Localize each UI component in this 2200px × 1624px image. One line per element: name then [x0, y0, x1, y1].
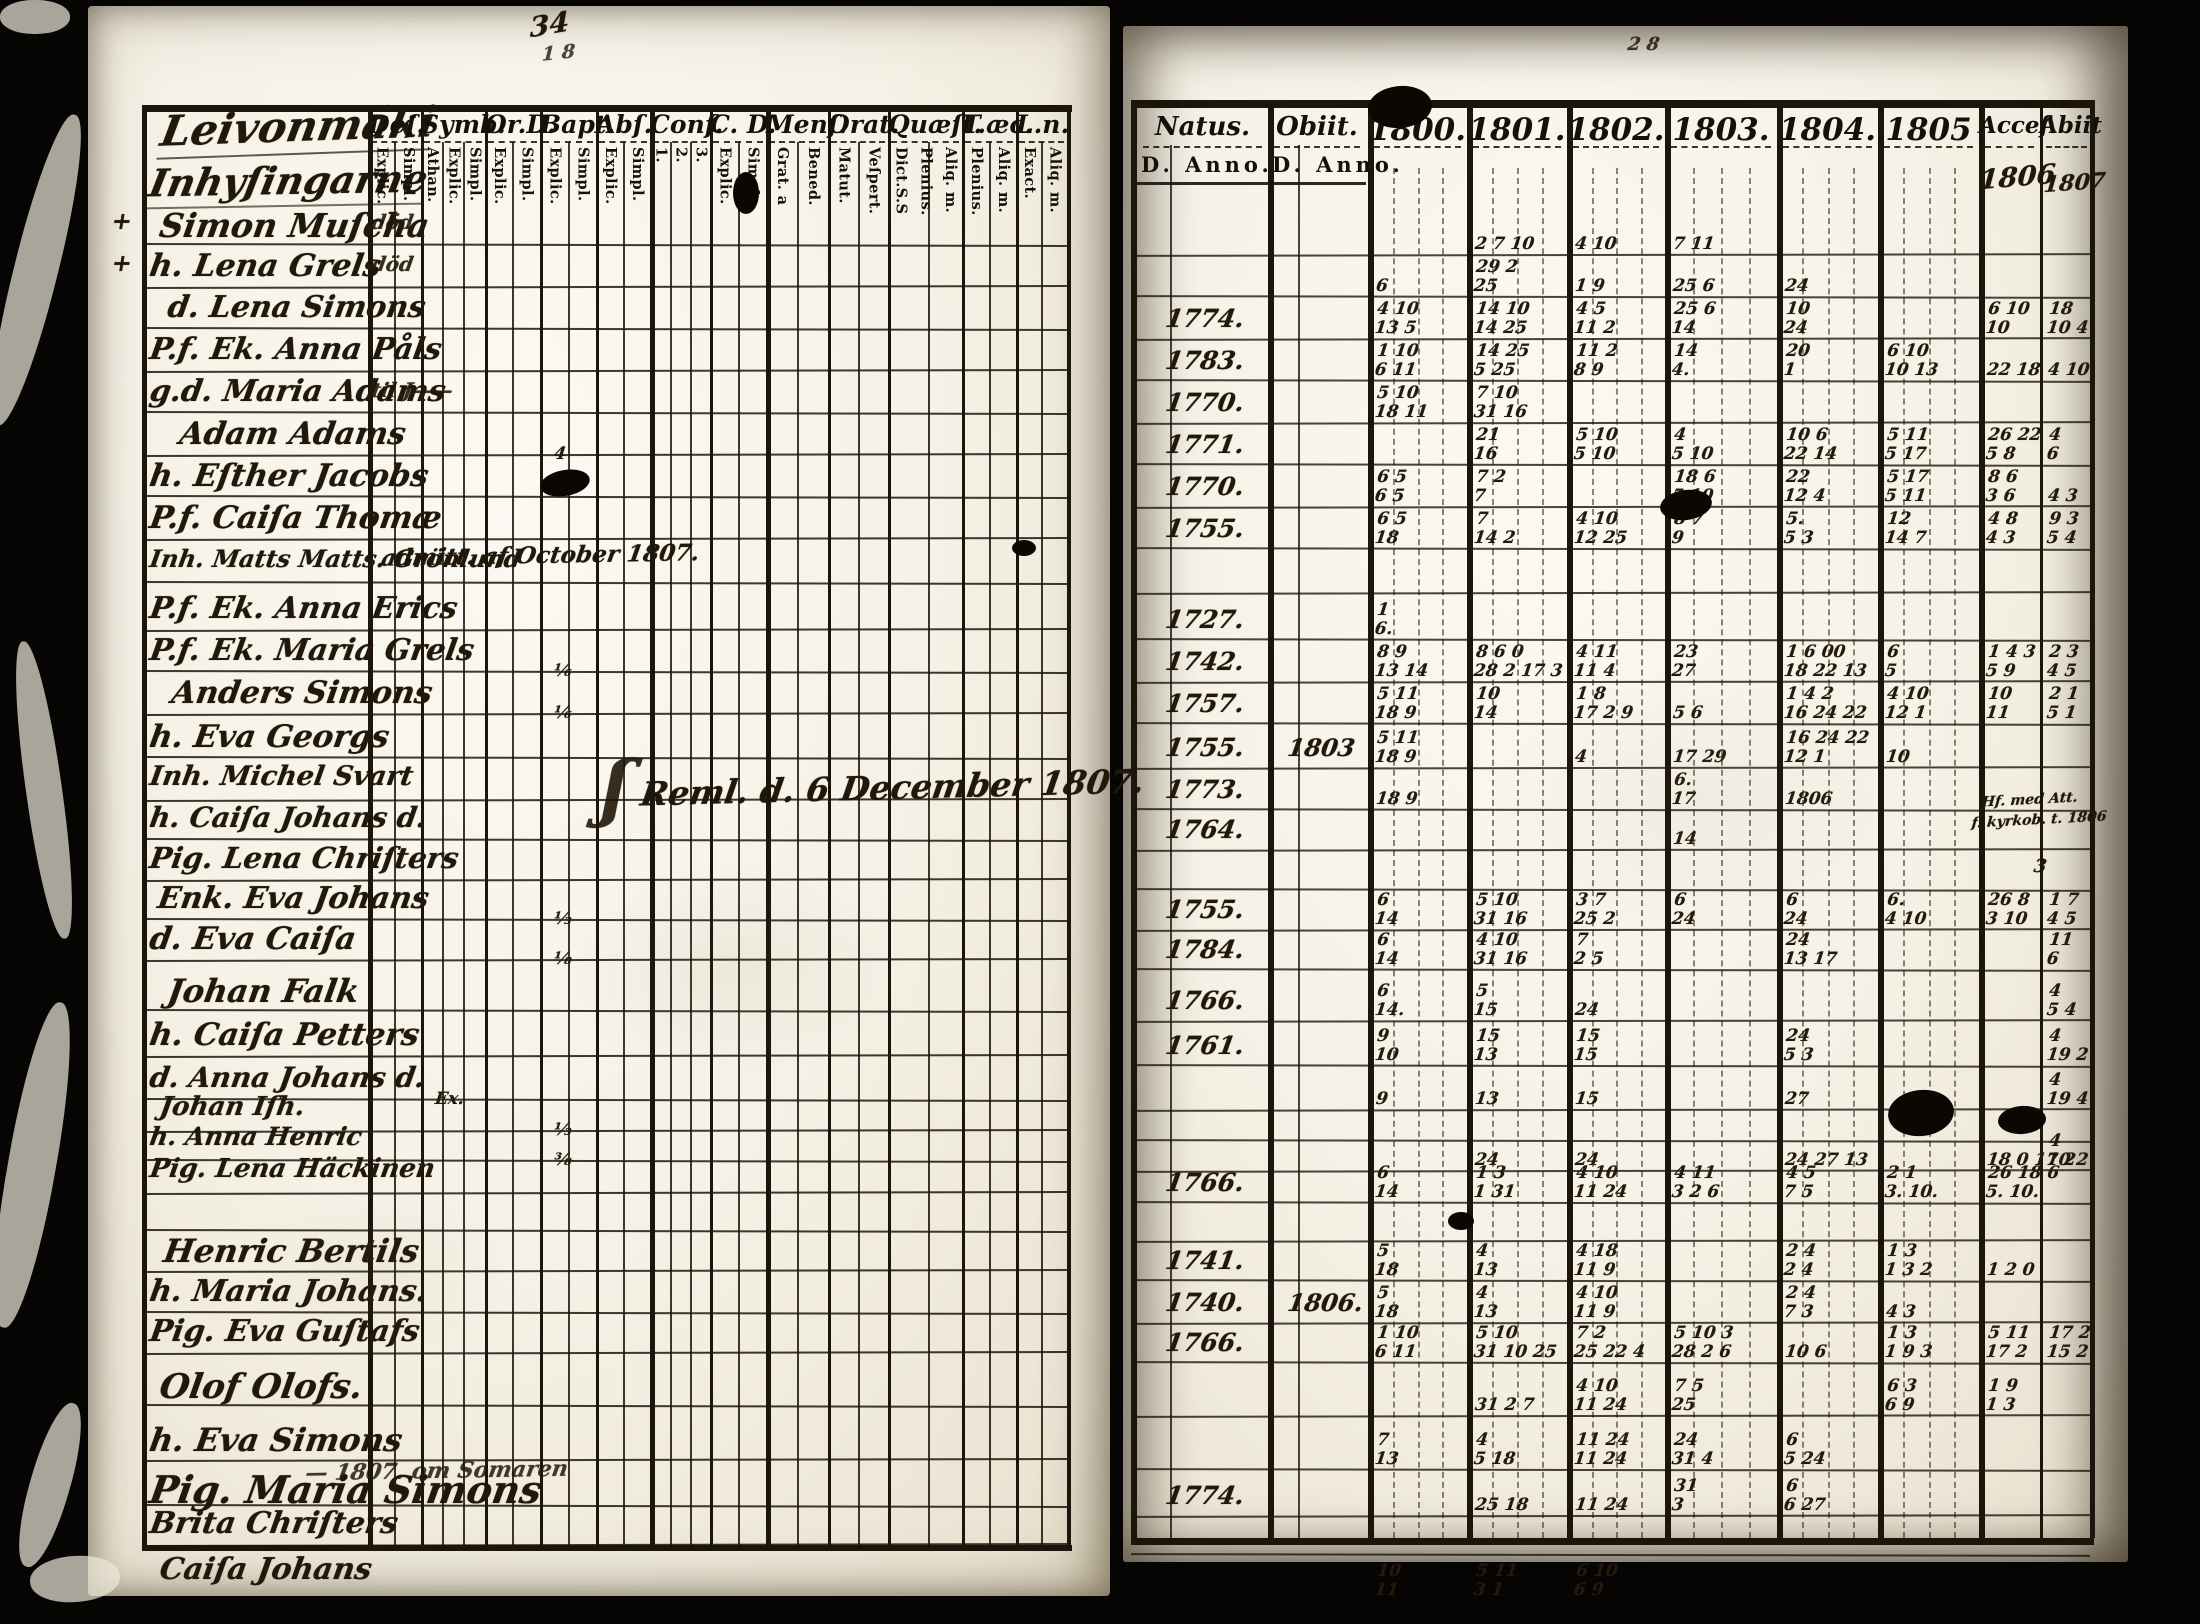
- column-subheader-ln: Exact.Aliq. m.: [1016, 147, 1067, 221]
- cell-mark-y1804-r30: 6 5 24: [1783, 1431, 1881, 1469]
- column-subheader-label-quaest-0: Dict.S.S: [893, 147, 908, 214]
- cell-mark-symb-r21: Ex.: [434, 1090, 492, 1109]
- cell-mark-abi-r17: 1 7 4 5: [2046, 891, 2096, 929]
- edge-streak-2: [0, 998, 84, 1331]
- column-header-abs: Abſ.: [596, 110, 650, 139]
- column-subheader-mens: Grat. aBened.: [766, 147, 828, 221]
- right-header-underline-y1803: [1671, 146, 1771, 148]
- cell-mark-y1802-r1: 4 10: [1574, 235, 1666, 254]
- cell-mark-y1802-r19: 24: [1574, 1001, 1666, 1020]
- cell-mark-y1803-r1: 7 11: [1672, 235, 1778, 254]
- cell-mark-y1804-r24: 4 5 7 5: [1783, 1164, 1881, 1202]
- row-name-20: h. Caiſa Petters: [147, 1017, 422, 1053]
- cell-mark-y1800-r4: 1 10 6 11: [1374, 342, 1470, 380]
- cell-mark-y1802-r8: 4 10 12 25: [1573, 510, 1668, 548]
- cell-mark-y1801-r30: 4 5 18: [1473, 1431, 1570, 1469]
- cell-mark-y1802-r20: 15 15: [1573, 1027, 1668, 1065]
- column-header-underline-taec: [965, 141, 1013, 143]
- natus-value-28: 1766.: [1148, 1328, 1263, 1357]
- cell-mark-bapt-r11: ⅙: [553, 662, 603, 681]
- row-name-29: Olof Olofs.: [157, 1367, 366, 1407]
- column-subheader-orat: Matut.Veſpert.: [828, 147, 888, 221]
- column-border-ord: [485, 105, 488, 1545]
- column-subheader-quaest: Dict.S.SPlenius.Aliq. m.: [888, 147, 962, 221]
- right-column-header-natus: Natus.: [1137, 112, 1268, 142]
- row-name-4: P.f. Ek. Anna Påls: [147, 332, 444, 367]
- natus-value-15: 1764.: [1148, 815, 1263, 844]
- natus-value-3: 1774.: [1148, 304, 1263, 333]
- cell-mark-y1802-r26: 4 18 11 9: [1573, 1242, 1668, 1280]
- column-header-underline-conf: [653, 141, 707, 143]
- cell-mark-y1800-r26: 5 18: [1374, 1242, 1470, 1280]
- column-subheader-label-symb-1: Explic.: [446, 147, 461, 205]
- right-column-header-obiit: Obiit.: [1268, 112, 1366, 142]
- column-border-cd: [710, 105, 713, 1545]
- cell-mark-y1801-r27: 4 13: [1473, 1284, 1570, 1322]
- right-subheader-obiit: D. Anno.: [1272, 152, 1362, 177]
- cell-mark-y1802-r17: 3 7 25 2: [1573, 891, 1668, 929]
- cell-mark-y1804-r13: 16 24 22 12 1: [1783, 729, 1881, 767]
- column-subheader-label-bapt-0: Explic.: [547, 147, 562, 205]
- cell-mark-abi-r4: 4 10: [2047, 361, 2094, 380]
- cell-mark-y1804-r14: 1806: [1784, 790, 1879, 809]
- row-name-19: Johan Falk: [165, 972, 362, 1010]
- sub-column-line-8: [738, 142, 740, 1545]
- left-table-left-border: [142, 105, 147, 1545]
- natus-value-20: 1761.: [1148, 1031, 1263, 1060]
- cell-mark-acc-r26: 1 2 0: [1986, 1261, 2041, 1280]
- cell-mark-y1804-r27: 2 4 7 3: [1783, 1284, 1881, 1322]
- natus-value-10: 1727.: [1148, 605, 1263, 634]
- row-name-33: Caiſa Johans: [157, 1552, 374, 1587]
- cell-mark-y1805-r24: 2 1 3. 10.: [1884, 1164, 1982, 1202]
- column-header-mens: Menſ.: [766, 110, 828, 139]
- cell-mark-y1803-r15: 14: [1672, 830, 1778, 849]
- cell-mark-y1802-r11: 4 11 11 4: [1573, 643, 1668, 681]
- row-name-23: h. Anna Henric: [148, 1122, 364, 1151]
- row-name-2: h. Lena Grels: [147, 248, 384, 284]
- cell-mark-y1801-r2: 29 2 25: [1473, 258, 1570, 296]
- cell-mark-acc-r17: 26 8 3 10: [1985, 891, 2043, 929]
- natus-value-11: 1742.: [1148, 647, 1263, 676]
- column-header-ln: L.n.: [1016, 110, 1067, 139]
- column-subheader-label-taec-1: Aliq. m.: [995, 147, 1010, 213]
- cell-mark-y1801-r18: 4 10 31 16: [1473, 931, 1570, 969]
- right-header-underline-natus: [1143, 146, 1262, 148]
- cell-mark-acc-r7: 8 6 3 6: [1985, 468, 2043, 506]
- cell-mark-y1802-r30: 11 24 11 24: [1573, 1431, 1668, 1469]
- sub-column-line-4: [568, 142, 570, 1545]
- cell-mark-y1802-r6: 5 10 5 10: [1573, 426, 1668, 464]
- row-name-28: Pig. Eva Guſtafs: [147, 1314, 422, 1349]
- column-header-underline-mens: [769, 141, 825, 143]
- column-border-quaest: [888, 105, 891, 1545]
- cell-mark-abi-r12: 2 1 5 1: [2046, 685, 2096, 723]
- cell-mark-y1803-r11: 23 27: [1671, 643, 1780, 681]
- row-name-24: Pig. Lena Häckinen: [148, 1154, 438, 1184]
- cell-mark-acc-r29: 1 9 1 3: [1985, 1377, 2043, 1415]
- page-number-secondary: 1 8: [541, 40, 576, 65]
- right-table-bottom-border: [1131, 1538, 2094, 1545]
- row-name-14: Inh. Michel Svart: [148, 761, 416, 792]
- sub-column-line-5: [623, 142, 625, 1545]
- row-name-10: P.f. Ek. Anna Erics: [147, 591, 460, 626]
- cell-mark-y1802-r31: 11 24: [1574, 1496, 1666, 1515]
- edge-streak-1: [5, 639, 82, 941]
- cell-mark-y1805-r7: 5 17 5 11: [1884, 468, 1982, 506]
- cell-mark-abi-r7: 4 3: [2047, 487, 2094, 506]
- column-border-mens: [766, 105, 771, 1545]
- cell-mark-y1805-r26: 1 3 1 3 2: [1884, 1242, 1982, 1280]
- cell-mark-y1802-r29: 4 10 11 24: [1573, 1377, 1668, 1415]
- des-note-1: död: [370, 210, 415, 234]
- column-subheader-abs: Explic.Simpl.: [596, 147, 650, 221]
- cell-mark-acc-r12: 10 11: [1985, 685, 2043, 723]
- right-header-underline-acc: [1985, 146, 2034, 148]
- column-subheader-ord: Explic.Simpl.: [485, 147, 540, 221]
- right-column-header-y1803: 1803.: [1665, 112, 1777, 148]
- cell-mark-y1802-r13: 4: [1574, 748, 1666, 767]
- column-header-underline-symb: [424, 141, 482, 143]
- cell-mark-y1800-r20: 9 10: [1374, 1027, 1470, 1065]
- cell-mark-y1805-r4: 6 10 10 13: [1884, 342, 1982, 380]
- des-note-5: til J——: [370, 378, 455, 402]
- cell-mark-y1803-r29: 7 5 25: [1671, 1377, 1780, 1415]
- cell-mark-y1800-r5: 5 10 18 11: [1374, 384, 1470, 422]
- cell-mark-y1803-r6: 4 5 10: [1671, 426, 1780, 464]
- cell-mark-y1801-r4: 14 25 5 25: [1473, 342, 1570, 380]
- cell-mark-y1801-r26: 4 13: [1473, 1242, 1570, 1280]
- column-border-conf: [650, 105, 655, 1545]
- cell-mark-y1801-r24: 1 3 1 31: [1473, 1164, 1570, 1202]
- column-header-underline-bapt: [543, 141, 593, 143]
- cell-mark-y1801-r6: 21 16: [1473, 426, 1570, 464]
- cell-mark-abi-r6: 4 6: [2046, 426, 2096, 464]
- column-header-cd: C. D.: [710, 110, 766, 139]
- right-column-header-acc: Acceſ.: [1979, 112, 2040, 139]
- right-column-header-y1802: 1802.: [1567, 112, 1665, 148]
- cell-mark-y1804-r2: 24: [1784, 277, 1879, 296]
- cell-mark-y1800-r24: 6 14: [1374, 1164, 1470, 1202]
- cell-mark-y1800-r2: 6: [1375, 277, 1468, 296]
- cell-mark-bapt-r18: ⅛: [553, 950, 603, 969]
- column-subheader-label-ln-0: Exact.: [1021, 147, 1036, 199]
- right-header-underline-y1804: [1783, 146, 1872, 148]
- sub-column-line-11: [928, 142, 930, 1545]
- natus-value-14: 1773.: [1148, 775, 1263, 804]
- cell-mark-y1805-r6: 5 11 5 17: [1884, 426, 1982, 464]
- cell-mark-y1804-r18: 24 13 17: [1783, 931, 1881, 969]
- cell-mark-y1804-r31: 6 6 27: [1783, 1477, 1881, 1515]
- column-header-bapt: Bapt.: [540, 110, 596, 139]
- right-table-top-border: [1131, 100, 2094, 108]
- cell-mark-y1801-r1: 2 7 10: [1474, 235, 1568, 254]
- column-subheader-label-cd-0: Explic.: [717, 147, 732, 205]
- page-number: 34: [529, 5, 569, 44]
- cell-mark-y1800-r21: 9: [1375, 1090, 1468, 1109]
- cell-mark-y1804-r6: 10 6 22 14: [1783, 426, 1881, 464]
- cell-mark-y1800-r14: 18 9: [1375, 790, 1468, 809]
- cell-mark-y1801-r31: 25 18: [1474, 1496, 1568, 1515]
- sub-column-line-12: [989, 142, 991, 1545]
- cell-mark-y1801-r5: 7 10 31 16: [1473, 384, 1570, 422]
- row-name-27: h. Maria Johans.: [147, 1274, 430, 1309]
- natus-value-7: 1770.: [1148, 472, 1263, 501]
- cell-mark-abi-r19: 4 5 4: [2046, 982, 2096, 1020]
- cell-mark-y1800-r18: 6 14: [1374, 931, 1470, 969]
- cell-mark-y1804-r28: 10 6: [1784, 1343, 1879, 1362]
- row-name-30: h. Eva Simons: [147, 1421, 405, 1459]
- cell-mark-abi-r28: 17 2 15 2: [2046, 1324, 2096, 1362]
- cell-mark-y1803-r24: 4 11 3 2 6: [1671, 1164, 1780, 1202]
- cell-mark-y1801-r3: 14 10 14 25: [1473, 300, 1570, 338]
- cell-mark-y1800-r33: 10 11: [1374, 1562, 1470, 1600]
- cell-mark-y1800-r7: 6 5 6 5: [1374, 468, 1470, 506]
- cell-mark-y1801-r11: 8 6 0 28 2 17 3: [1473, 643, 1570, 681]
- cell-mark-y1801-r21: 13: [1474, 1090, 1568, 1109]
- sub-column-line-13: [1041, 142, 1043, 1545]
- column-header-ord: Or.D.: [485, 110, 540, 139]
- cell-mark-y1802-r24: 4 10 11 24: [1573, 1164, 1668, 1202]
- natus-value-24: 1766.: [1148, 1168, 1263, 1197]
- column-subheader-label-abs-1: Simpl.: [629, 147, 644, 201]
- des-note-2: död: [370, 252, 415, 276]
- cell-mark-y1803-r28: 5 10 3 28 2 6: [1671, 1324, 1780, 1362]
- sub-column-line-6: [670, 142, 672, 1545]
- cell-mark-y1803-r12: 5 6: [1672, 704, 1778, 723]
- cell-mark-y1803-r3: 25 6 14: [1671, 300, 1780, 338]
- natus-value-26: 1741.: [1148, 1246, 1263, 1275]
- edge-streak-4: [0, 0, 70, 34]
- column-subheader-label-conf-2: 3.: [693, 147, 708, 163]
- column-border-abs: [596, 105, 599, 1545]
- natus-value-17: 1755.: [1148, 895, 1263, 924]
- cell-mark-y1804-r3: 10 24: [1783, 300, 1881, 338]
- natus-value-18: 1784.: [1148, 935, 1263, 964]
- edge-streak-0: [0, 109, 96, 430]
- column-subheader-label-symb-2: Simpl.: [467, 147, 482, 201]
- right-column-header-y1805: 1805: [1878, 112, 1979, 148]
- sub-column-line-9: [797, 142, 799, 1545]
- cell-mark-y1803-r30: 24 31 4: [1671, 1431, 1780, 1469]
- cell-mark-bapt-r22: ⅓: [553, 1121, 603, 1140]
- cell-mark-y1804-r8: 5. 5 3: [1783, 510, 1881, 548]
- cell-mark-y1800-r8: 6 5 18: [1374, 510, 1470, 548]
- cell-mark-y1805-r12: 4 10 12 1: [1884, 685, 1982, 723]
- column-subheader-label-ord-1: Simpl.: [519, 147, 534, 201]
- column-header-quaest: Quæſt.: [888, 110, 962, 139]
- column-header-orat: Orat.: [828, 110, 888, 139]
- cell-mark-y1801-r12: 10 14: [1473, 685, 1570, 723]
- column-subheader-label-mens-0: Grat. a: [774, 147, 789, 205]
- column-subheader-conf: 1.2.3.: [650, 147, 710, 221]
- cell-mark-abi-r3: 18 10 4: [2046, 300, 2096, 338]
- cell-mark-y1803-r17: 6 24: [1671, 891, 1780, 929]
- left-table-right-border: [1067, 105, 1071, 1545]
- cell-mark-bapt-r23: ⅜: [553, 1151, 603, 1170]
- natus-value-4: 1783.: [1148, 346, 1263, 375]
- sub-column-line-3: [512, 142, 514, 1545]
- sub-column-line-7: [690, 142, 692, 1545]
- right-header-underline-y1801: [1473, 146, 1561, 148]
- cell-mark-y1800-r27: 5 18: [1374, 1284, 1470, 1322]
- row-name-6: Adam Adams: [177, 416, 408, 452]
- column-header-underline-abs: [599, 141, 647, 143]
- column-subheader-label-orat-0: Matut.: [836, 147, 851, 204]
- cell-mark-y1803-r31: 31 3: [1671, 1477, 1780, 1515]
- column-header-underline-cd: [713, 141, 763, 143]
- cell-mark-y1805-r27: 4 3: [1885, 1303, 1980, 1322]
- cell-mark-y1800-r13: 5 11 18 9: [1374, 729, 1470, 767]
- cell-mark-y1801-r20: 15 13: [1473, 1027, 1570, 1065]
- column-subheader-label-quaest-2: Aliq. m.: [942, 147, 957, 213]
- column-border-orat: [828, 105, 831, 1545]
- cell-mark-y1800-r3: 4 10 13 5: [1374, 300, 1470, 338]
- column-subheader-label-des-0: Explic.: [374, 147, 389, 205]
- cell-mark-y1804-r17: 6 24: [1783, 891, 1881, 929]
- cell-mark-y1801-r7: 7 2 7: [1473, 468, 1570, 506]
- column-header-underline-des: [371, 141, 418, 143]
- cell-mark-acc-r6: 26 22 5 8: [1985, 426, 2043, 464]
- cell-mark-abi-r21: 4 19 4: [2046, 1071, 2096, 1109]
- column-header-underline-orat: [831, 141, 885, 143]
- column-subheader-label-orat-1: Veſpert.: [866, 147, 881, 214]
- row-name-18: d. Eva Caiſa: [147, 921, 358, 957]
- column-subheader-label-conf-0: 1.: [653, 147, 668, 163]
- cell-mark-y1804-r20: 24 5 3: [1783, 1027, 1881, 1065]
- cell-mark-y1805-r8: 12 14 7: [1884, 510, 1982, 548]
- column-subheader-label-abs-0: Explic.: [602, 147, 617, 205]
- cell-mark-y1802-r33: 6 10 6 9: [1573, 1562, 1668, 1600]
- natus-value-12: 1757.: [1148, 689, 1263, 718]
- right-column-header-y1801: 1801.: [1467, 112, 1567, 148]
- column-subheader-label-des-1: Simpl.: [400, 147, 415, 201]
- column-subheader-label-mens-1: Bened.: [805, 147, 820, 206]
- cell-mark-abi-r8: 9 3 5 4: [2046, 510, 2096, 548]
- column-subheader-label-symb-0: Athan.: [424, 147, 439, 203]
- cell-mark-y1801-r8: 7 14 2: [1473, 510, 1570, 548]
- column-border-taec: [962, 105, 965, 1545]
- right-header-underline-y1800: [1374, 146, 1461, 148]
- cell-mark-y1800-r30: 7 13: [1374, 1431, 1470, 1469]
- cell-mark-y1802-r4: 11 2 8 9: [1573, 342, 1668, 380]
- right-header-underline-y1805: [1884, 146, 1973, 148]
- column-header-underline-ord: [488, 141, 537, 143]
- cell-mark-y1802-r28: 7 2 25 22 4: [1573, 1324, 1668, 1362]
- row-name-21: d. Anna Johans d.: [147, 1061, 427, 1094]
- column-subheader-bapt: Explic.Simpl.: [540, 147, 596, 221]
- cell-mark-acc-r11: 1 4 3 5 9: [1985, 643, 2043, 681]
- row-name-12: Anders Simons: [169, 675, 435, 711]
- cell-mark-y1802-r27: 4 10 11 9: [1573, 1284, 1668, 1322]
- cell-mark-y1805-r13: 10: [1885, 748, 1980, 767]
- row-name-26: Henric Bertils: [161, 1232, 422, 1270]
- cell-mark-acc-r8: 4 8 4 3: [1985, 510, 2043, 548]
- column-subheader-label-taec-0: Plenius.: [968, 147, 983, 216]
- natus-value-31: 1774.: [1148, 1481, 1263, 1510]
- natus-value-19: 1766.: [1148, 986, 1263, 1015]
- cell-mark-y1805-r11: 6 5: [1884, 643, 1982, 681]
- cell-mark-y1800-r12: 5 11 18 9: [1374, 685, 1470, 723]
- cell-mark-abi-r11: 2 3 4 5: [2046, 643, 2096, 681]
- cell-mark-y1805-r17: 6. 4 10: [1884, 891, 1982, 929]
- column-header-symb: Symb:: [421, 110, 485, 139]
- cell-mark-bapt-r6: 4: [553, 445, 603, 464]
- cell-mark-y1803-r4: 14 4.: [1671, 342, 1780, 380]
- row-name-13: h. Eva Georgs: [147, 719, 392, 755]
- natus-value-8: 1755.: [1148, 514, 1263, 543]
- ink-blot-2: [733, 172, 759, 214]
- row-name-8: P.f. Caiſa Thomæ: [147, 500, 444, 536]
- column-subheader-label-conf-1: 2.: [673, 147, 688, 163]
- cell-mark-y1800-r10: 1 6.: [1374, 601, 1470, 639]
- cell-mark-y1802-r2: 1 9: [1574, 277, 1666, 296]
- sub-column-line-2: [463, 142, 465, 1545]
- cell-mark-y1804-r7: 22 12 4: [1783, 468, 1881, 506]
- cell-mark-acc-r28: 5 11 17 2: [1985, 1324, 2043, 1362]
- cell-mark-y1805-r29: 6 3 6 9: [1884, 1377, 1982, 1415]
- cell-mark-y1801-r28: 5 10 31 10 25: [1473, 1324, 1570, 1362]
- cell-mark-y1800-r17: 6 14: [1374, 891, 1470, 929]
- cell-mark-y1802-r3: 4 5 11 2: [1573, 300, 1668, 338]
- cell-mark-y1803-r13: 17 29: [1672, 748, 1778, 767]
- sub-column-line-10: [858, 142, 860, 1545]
- row-name-7: h. Eſther Jacobs: [147, 458, 431, 494]
- row-name-15: h. Caiſa Johans d.: [147, 801, 429, 834]
- cell-mark-y1802-r21: 15: [1574, 1090, 1666, 1109]
- cell-mark-abi-r18: 11 6: [2046, 931, 2096, 969]
- right-subheader-natus: D. Anno.: [1141, 152, 1264, 177]
- column-header-des: Deſ.: [368, 110, 421, 139]
- right-header-underline-y1802: [1573, 146, 1659, 148]
- cell-mark-y1802-r18: 7 2 5: [1573, 931, 1668, 969]
- column-border-bapt: [540, 105, 543, 1545]
- right-header-underline-obiit: [1274, 146, 1360, 148]
- ink-blot-1: [1012, 540, 1036, 556]
- obiit-value-13: 1803: [1286, 733, 1357, 762]
- cell-mark-y1802-r12: 1 8 17 2 9: [1573, 685, 1668, 723]
- cell-mark-y1804-r26: 2 4 2 4: [1783, 1242, 1881, 1280]
- cell-mark-y1804-r11: 1 6 00 18 22 13: [1783, 643, 1881, 681]
- cell-mark-bapt-r12: ⅙: [553, 704, 603, 723]
- column-header-underline-quaest: [891, 141, 959, 143]
- cell-mark-y1805-r28: 1 3 1 9 3: [1884, 1324, 1982, 1362]
- abiit-year-note: 1807: [2043, 168, 2107, 198]
- natus-value-6: 1771.: [1148, 430, 1263, 459]
- right-header-underline-abi: [2046, 146, 2087, 148]
- row-name-32: Brita Chriſters: [147, 1506, 400, 1541]
- obiit-day-divider: [1298, 145, 1300, 1538]
- row-name-3: d. Lena Simons: [165, 290, 428, 325]
- row-name-9: Inh. Matts Matts. Grönlund: [148, 544, 523, 573]
- top-margin-mark: 2 8: [1626, 34, 1661, 55]
- cell-mark-y1800-r11: 8 9 13 14: [1374, 643, 1470, 681]
- column-header-underline-ln: [1019, 141, 1064, 143]
- column-subheader-label-ord-0: Explic.: [491, 147, 506, 205]
- row-name-11: P.f. Ek. Maria Grels: [147, 633, 476, 668]
- cell-mark-y1804-r4: 20 1: [1783, 342, 1881, 380]
- cell-mark-bapt-r17: ⅓: [553, 910, 603, 929]
- natus-obiit-subheader-rule: [1137, 182, 1366, 185]
- cell-mark-y1801-r17: 5 10 31 16: [1473, 891, 1570, 929]
- obiit-value-27: 1806.: [1286, 1288, 1366, 1317]
- cell-mark-acc-r3: 6 10 10: [1985, 300, 2043, 338]
- cell-mark-y1801-r29: 31 2 7: [1474, 1396, 1568, 1415]
- column-header-conf: Conf.: [650, 110, 710, 139]
- cell-mark-y1800-r19: 6 14.: [1374, 982, 1470, 1020]
- column-border-ln: [1016, 105, 1019, 1545]
- row-name-17: Enk. Eva Johans: [155, 881, 431, 916]
